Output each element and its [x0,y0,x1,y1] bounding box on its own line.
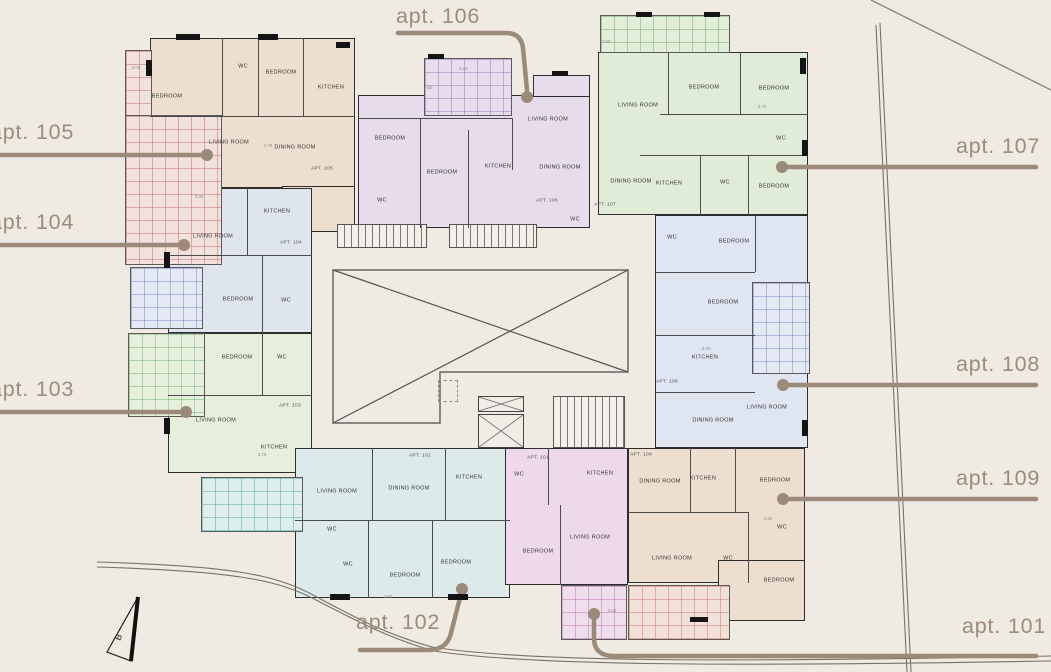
room-label: DINING ROOM [692,418,733,424]
room-label: WC [377,198,387,204]
room-label: BEDROOM [523,549,554,555]
dimension-label: 3.65 [384,595,393,600]
unit-id-label: APT. 108 [656,381,678,386]
room-label: WC [776,136,786,142]
room-label: KITCHEN [456,475,482,481]
room-label: WC [777,525,787,531]
unit-id-label: APT. 104 [280,242,302,247]
room-label: DINING ROOM [639,479,680,485]
unit-id-label: APT. 109 [630,454,652,459]
room-label: BEDROOM [441,560,472,566]
unit-id-label: APT. 105 [311,168,333,173]
unit-id-label: APT. 106 [536,200,558,205]
room-label: WC [277,355,287,361]
room-label: WC [723,556,733,562]
unit-id-label: APT. 102 [409,455,431,460]
room-label: WC [238,64,248,70]
room-label: WC [570,217,580,223]
room-label: DINING ROOM [610,179,651,185]
room-label: BEDROOM [375,136,406,142]
room-label: DINING ROOM [388,486,429,492]
unit-id-label: APT. 103 [279,405,301,410]
room-label: WC [720,180,730,186]
dimension-label: 3.05 [195,195,204,200]
callout-apt-106: apt. 106 [396,6,480,28]
dimension-label: 2.65 [608,609,617,614]
room-label: KITCHEN [318,85,344,91]
room-label: BEDROOM [708,300,739,306]
room-label: BEDROOM [222,355,253,361]
dimension-label: 3.00 [132,66,141,71]
floor-plan: B [0,0,1051,672]
dimension-label: 3.75 [264,144,273,149]
room-label: BEDROOM [759,86,790,92]
unit-id-label: APT. 101 [527,457,549,462]
room-label: BEDROOM [760,478,791,484]
callout-apt-103: apt. 103 [0,379,74,401]
room-label: BEDROOM [759,184,790,190]
room-label: LIVING ROOM [652,556,692,562]
dimension-label: 3.70 [758,105,767,110]
unit-id-label: APT. 107 [594,204,616,209]
room-label: LIVING ROOM [196,418,236,424]
room-label: BEDROOM [152,94,183,100]
dimension-label: 3.75 [258,453,267,458]
room-label: BEDROOM [223,297,254,303]
room-label: WC [667,235,677,241]
callout-apt-104: apt. 104 [0,212,74,234]
dimension-label: 2.90 [602,40,611,45]
room-label: BEDROOM [719,239,750,245]
dimension-label: 4.20 [459,67,468,72]
dimension-label: 2.50 [764,517,773,522]
room-label: KITCHEN [587,471,613,477]
callout-apt-105: apt. 105 [0,122,74,144]
dimension-label: 3.20 [702,347,711,352]
room-label: LIVING ROOM [209,140,249,146]
room-label: LIVING ROOM [747,405,787,411]
dimension-label: 2.50 [424,86,433,91]
callout-apt-109: apt. 109 [956,468,1038,490]
room-label: KITCHEN [261,445,287,451]
room-label: KITCHEN [692,355,718,361]
room-label: LIVING ROOM [317,489,357,495]
room-label: KITCHEN [264,209,290,215]
room-label: LIVING ROOM [193,234,233,240]
room-label: KITCHEN [485,164,511,170]
callout-apt-107: apt. 107 [956,136,1038,158]
callout-apt-102: apt. 102 [356,612,440,634]
room-label: WC [343,562,353,568]
callout-apt-101: apt. 101 [962,616,1038,638]
room-label: DINING ROOM [274,145,315,151]
room-label: BEDROOM [427,170,458,176]
room-label: WC [327,527,337,533]
room-label: WC [281,298,291,304]
room-label: BEDROOM [266,70,297,76]
room-label: BEDROOM [689,85,720,91]
room-label: BEDROOM [764,578,795,584]
room-label: LIVING ROOM [528,117,568,123]
room-label: WC [514,472,524,478]
callout-apt-108: apt. 108 [956,354,1038,376]
room-label: KITCHEN [656,181,682,187]
room-label: LIVING ROOM [570,535,610,541]
room-label: BEDROOM [390,573,421,579]
room-label: LIVING ROOM [618,103,658,109]
label-layer: apt. 105 apt. 104 apt. 103 apt. 106 apt.… [0,0,1051,672]
room-label: KITCHEN [690,476,716,482]
room-label: DINING ROOM [539,165,580,171]
